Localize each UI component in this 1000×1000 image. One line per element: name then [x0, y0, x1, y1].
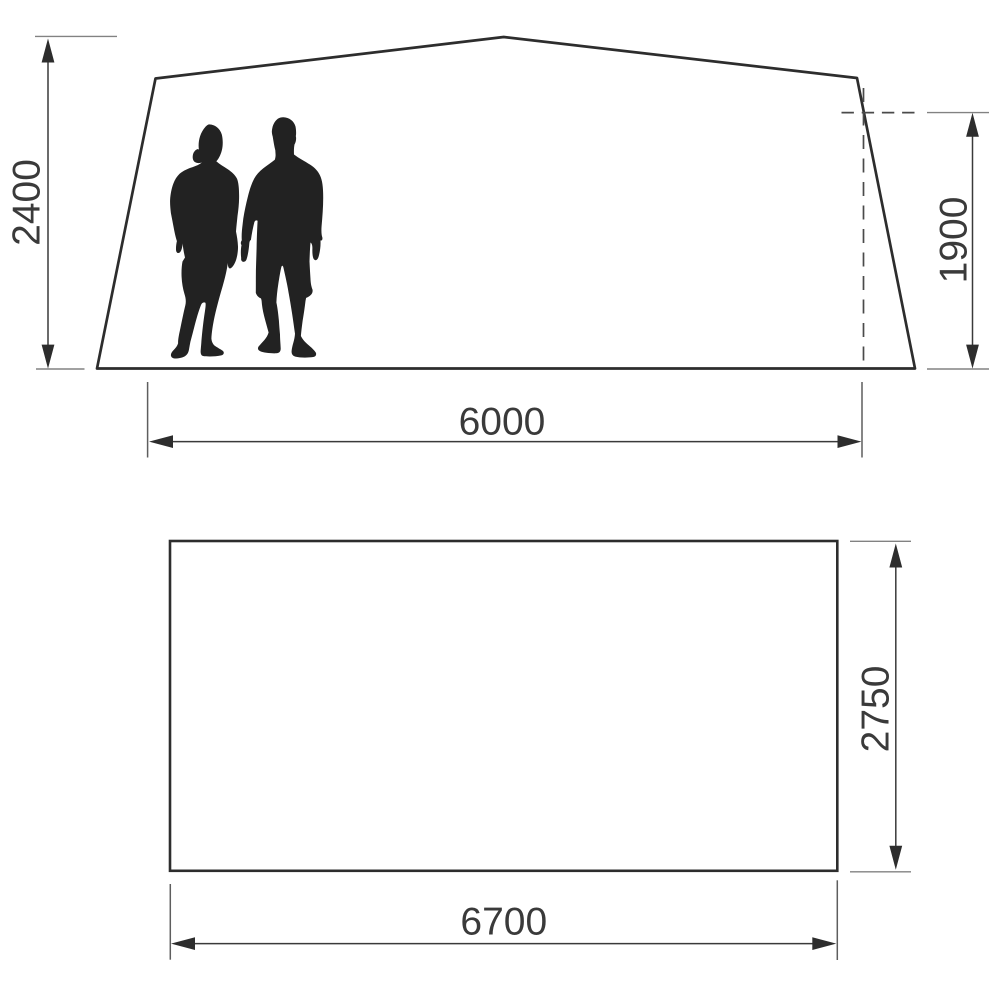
svg-text:2400: 2400 [6, 159, 49, 246]
svg-text:1900: 1900 [933, 197, 976, 284]
svg-text:6000: 6000 [459, 401, 546, 444]
svg-text:6700: 6700 [460, 901, 547, 944]
svg-text:2750: 2750 [854, 666, 897, 753]
